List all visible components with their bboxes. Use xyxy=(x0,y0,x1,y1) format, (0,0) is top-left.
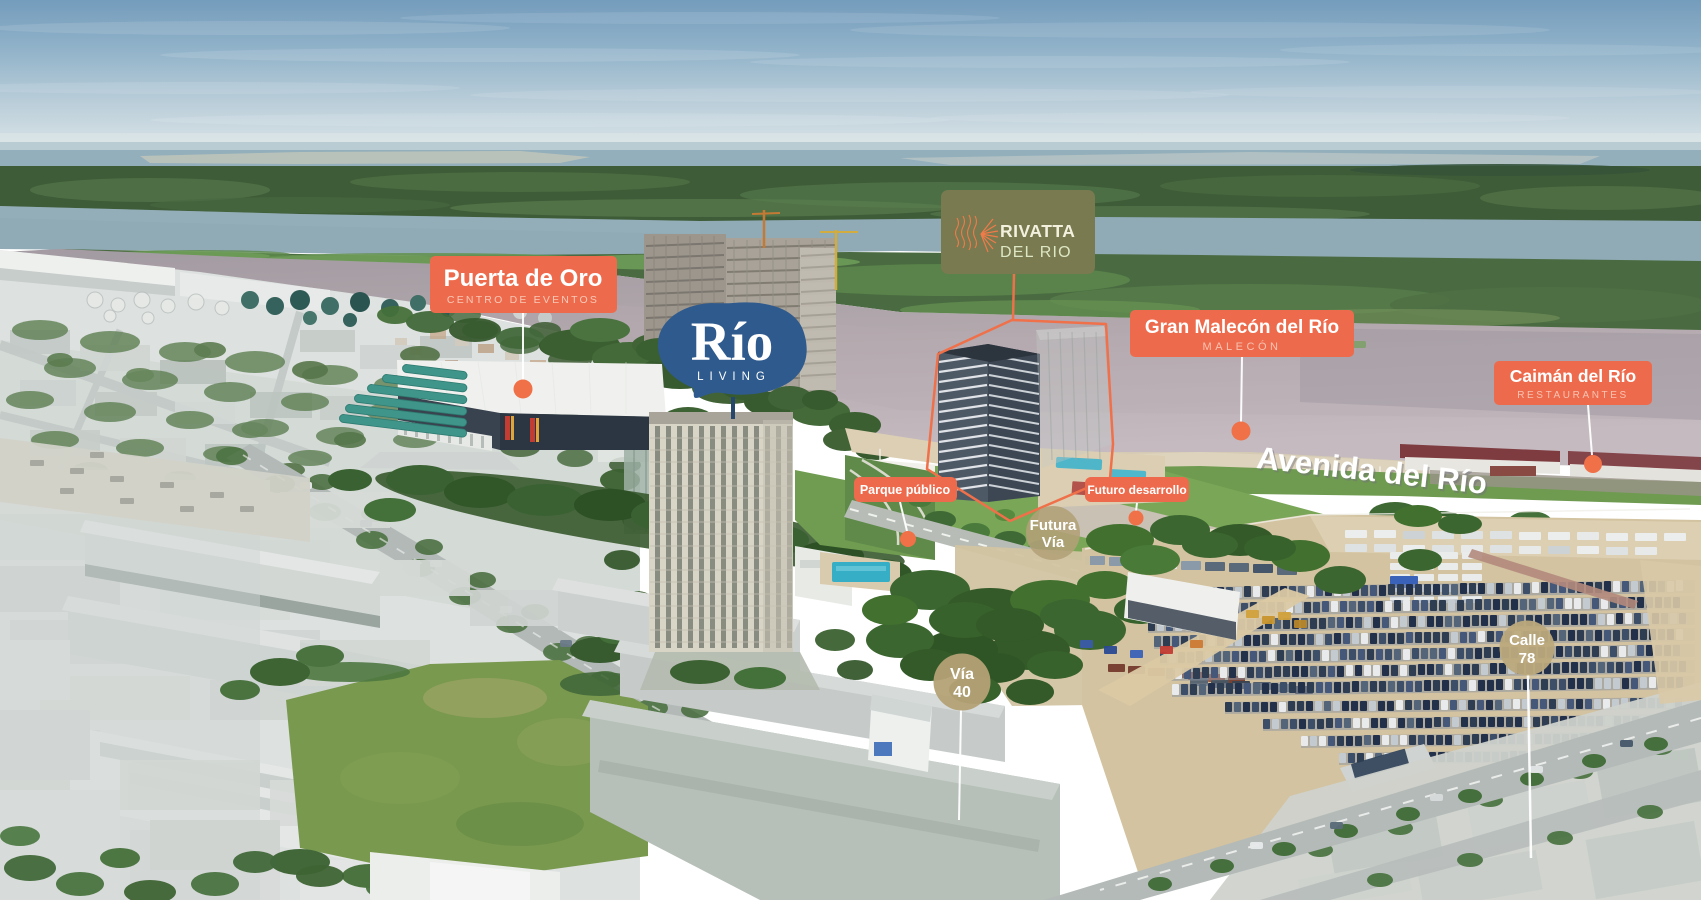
svg-text:CENTRO DE EVENTOS: CENTRO DE EVENTOS xyxy=(447,294,599,306)
svg-text:RIVATTA: RIVATTA xyxy=(1000,221,1075,241)
svg-text:Futura: Futura xyxy=(1030,517,1077,534)
svg-text:Futuro desarrollo: Futuro desarrollo xyxy=(1087,483,1186,497)
svg-text:LIVING: LIVING xyxy=(697,371,771,383)
svg-text:40: 40 xyxy=(953,684,971,701)
svg-text:Puerta de Oro: Puerta de Oro xyxy=(444,265,603,292)
svg-text:Gran Malecón del Río: Gran Malecón del Río xyxy=(1145,317,1339,338)
svg-text:Vía: Vía xyxy=(1042,534,1065,551)
svg-text:Caimán del Río: Caimán del Río xyxy=(1510,366,1636,386)
svg-text:Vía: Vía xyxy=(950,666,974,683)
svg-text:Río: Río xyxy=(691,311,774,372)
svg-text:MALECÓN: MALECÓN xyxy=(1203,340,1282,353)
svg-text:Parque público: Parque público xyxy=(860,483,951,497)
svg-text:RESTAURANTES: RESTAURANTES xyxy=(1517,390,1629,401)
svg-text:DEL RIO: DEL RIO xyxy=(1000,244,1072,261)
svg-text:Calle: Calle xyxy=(1509,632,1545,649)
svg-text:78: 78 xyxy=(1519,650,1536,667)
